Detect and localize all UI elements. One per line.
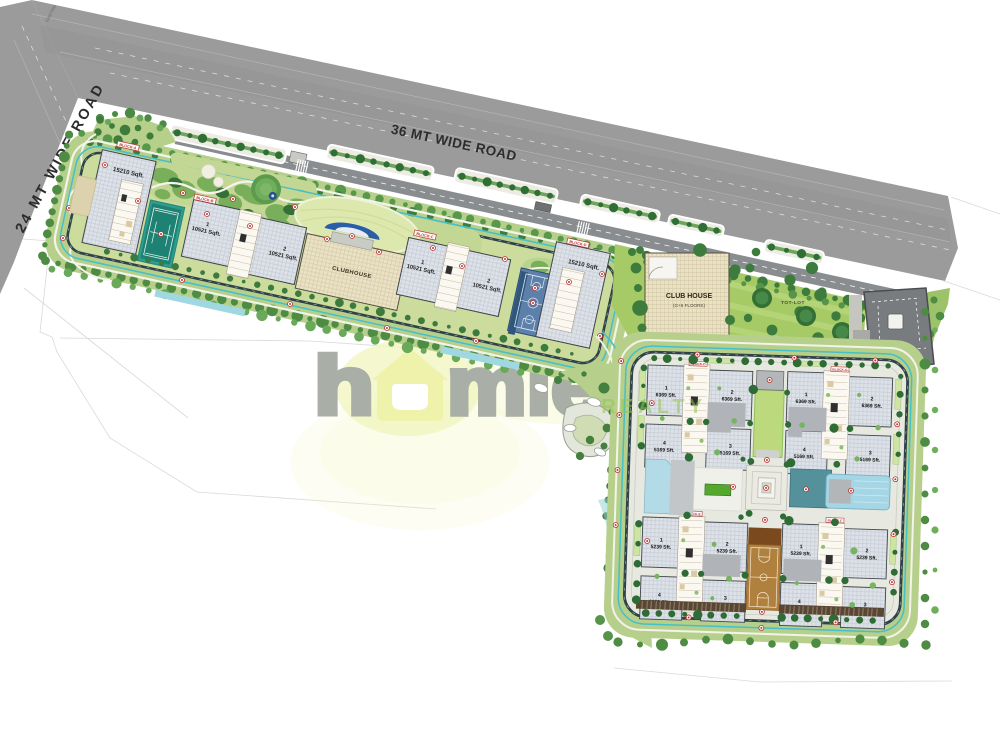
svg-text:4: 4 (658, 592, 661, 598)
svg-text:CLUB HOUSE: CLUB HOUSE (666, 293, 713, 300)
svg-text:2: 2 (865, 548, 868, 554)
svg-text:(G+6 FLOORS): (G+6 FLOORS) (673, 303, 706, 308)
svg-text:1: 1 (660, 537, 663, 543)
svg-text:6369 Sft.: 6369 Sft. (722, 396, 743, 403)
svg-text:5239 Sft.: 5239 Sft. (716, 548, 737, 555)
svg-text:3: 3 (729, 444, 732, 450)
svg-text:5239 Sft.: 5239 Sft. (651, 544, 672, 551)
svg-text:4: 4 (663, 440, 666, 446)
svg-text:1: 1 (805, 392, 808, 398)
svg-text:5239 Sft.: 5239 Sft. (856, 555, 877, 562)
svg-text:5169 Sft.: 5169 Sft. (860, 457, 881, 464)
svg-text:TOT-LOT: TOT-LOT (781, 300, 805, 306)
svg-text:1: 1 (800, 544, 803, 550)
svg-text:3: 3 (724, 596, 727, 602)
svg-text:6369 Sft.: 6369 Sft. (795, 399, 816, 406)
svg-text:5169 Sft.: 5169 Sft. (720, 450, 741, 457)
svg-text:5169 Sft.: 5169 Sft. (654, 447, 675, 454)
svg-text:2: 2 (870, 396, 873, 402)
svg-text:6369 Sft.: 6369 Sft. (861, 403, 882, 410)
svg-text:5169 Sft.: 5169 Sft. (794, 454, 815, 461)
svg-text:h: h (314, 341, 374, 432)
svg-text:BLOCK-G: BLOCK-G (832, 368, 848, 373)
svg-text:4: 4 (798, 599, 801, 605)
svg-text:4: 4 (803, 447, 806, 453)
svg-text:2: 2 (726, 542, 729, 548)
svg-text:1: 1 (665, 386, 668, 392)
svg-text:3: 3 (869, 450, 872, 456)
svg-text:2: 2 (731, 390, 734, 396)
svg-text:5239 Sft.: 5239 Sft. (790, 551, 811, 558)
svg-text:REALTY: REALTY (601, 396, 707, 418)
